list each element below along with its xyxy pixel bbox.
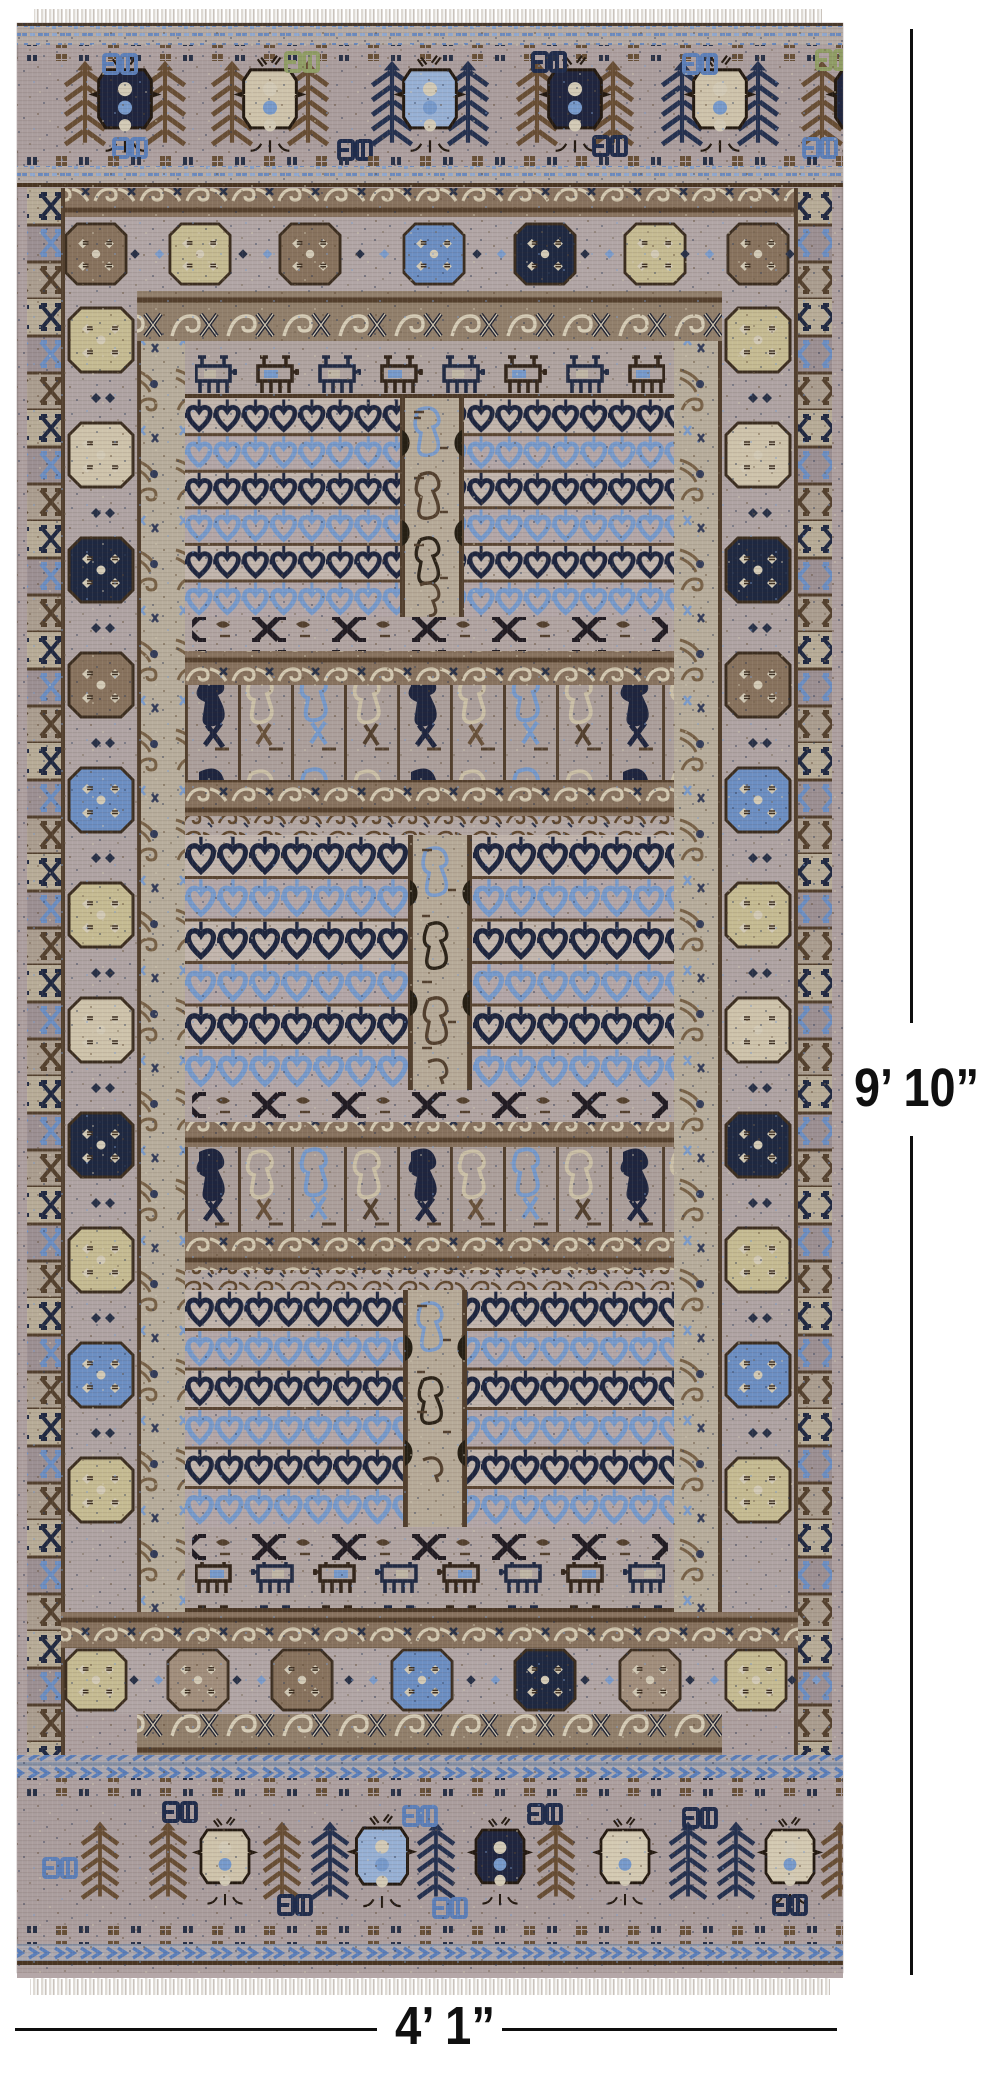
svg-text:9’ 10”: 9’ 10” bbox=[854, 1058, 979, 1118]
svg-text:4’ 1”: 4’ 1” bbox=[395, 1996, 495, 2056]
